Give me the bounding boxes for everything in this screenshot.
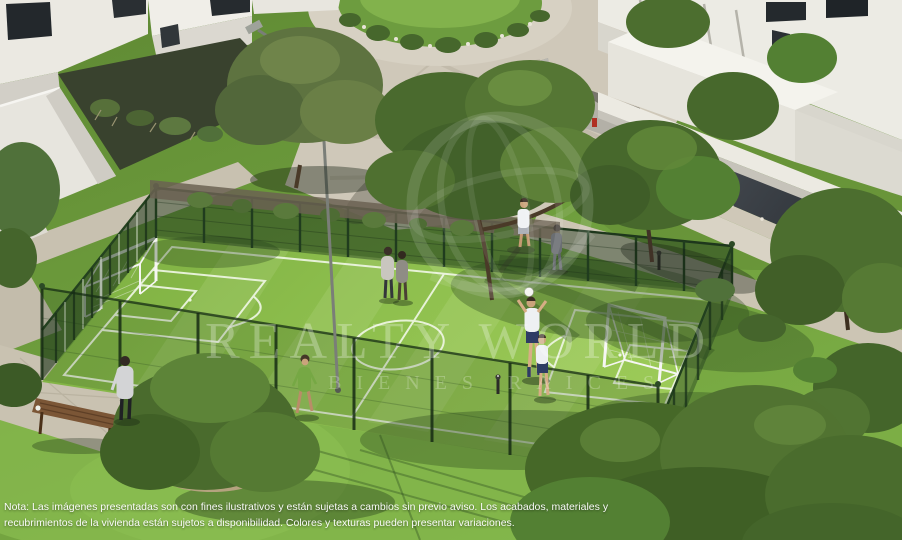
window	[160, 24, 180, 48]
penalty-spot-right	[618, 353, 621, 356]
disclaimer-line-1: Nota: Las imágenes presentadas son con f…	[4, 500, 644, 516]
scene-svg	[0, 0, 902, 540]
disclaimer-line-2: recubrimientos de la vivienda están suje…	[4, 516, 644, 532]
render-canvas: REALTY WORLD BIENES RAICES Nota: Las imá…	[0, 0, 902, 540]
hydrant	[592, 118, 597, 127]
disclaimer-note: Nota: Las imágenes presentadas son con f…	[4, 500, 644, 532]
window	[6, 2, 52, 40]
window	[826, 0, 868, 18]
window	[766, 2, 806, 22]
penalty-spot-left	[188, 298, 191, 301]
ball-on-lawn	[35, 405, 40, 410]
